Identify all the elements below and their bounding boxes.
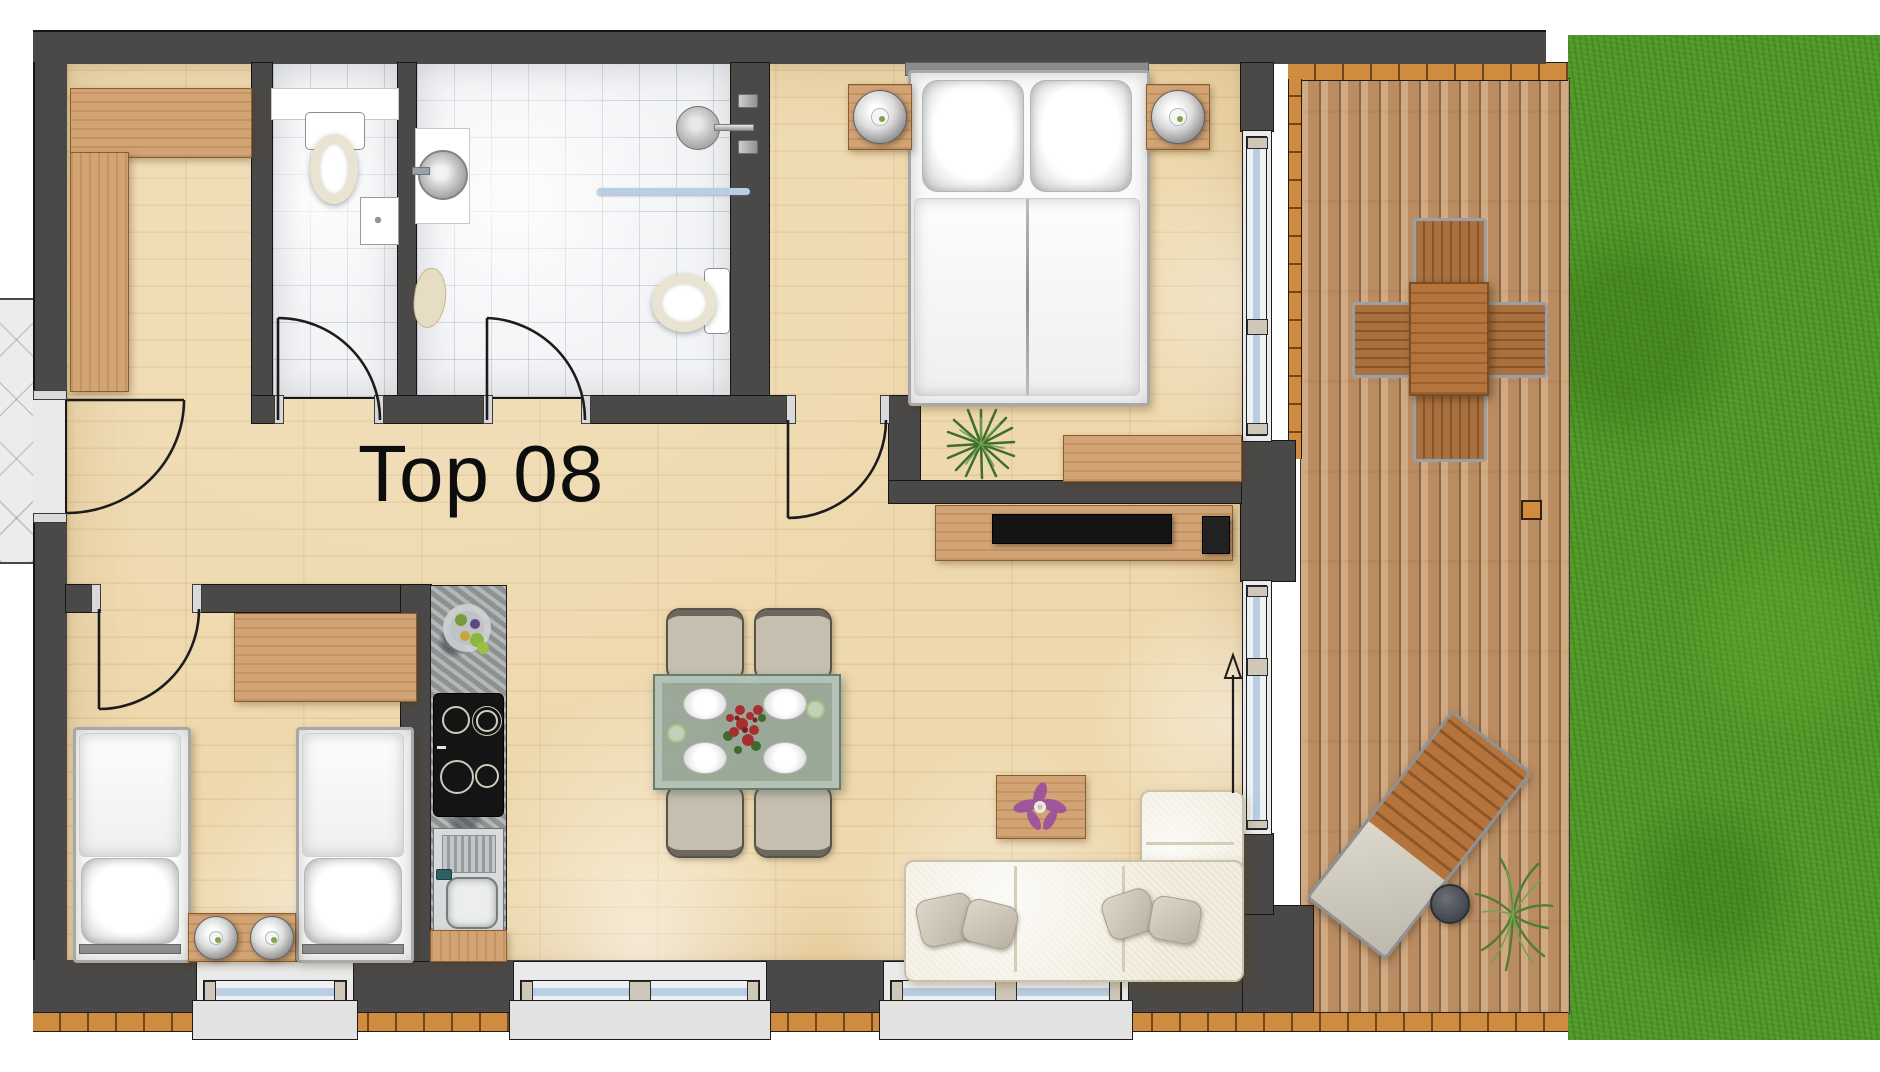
sliding-door-terrace: [1246, 585, 1267, 830]
bedside-lamp: [194, 916, 238, 960]
bed-footboard: [302, 944, 404, 954]
wc-door-jamb: [374, 395, 384, 424]
wall-outer-top: [33, 30, 1546, 64]
wall-wc-right: [397, 62, 417, 397]
sliding-door-glass: [1253, 589, 1260, 826]
single-bed-duvet: [79, 733, 181, 857]
entry-door-jamb: [33, 513, 67, 523]
sliding-door-handle: [1247, 658, 1268, 676]
cooktop: [433, 693, 504, 817]
burner: [475, 764, 499, 788]
terrace-chair-bottom: [1413, 392, 1487, 462]
hall-wardrobe-top: [70, 88, 252, 158]
hob-control: [437, 746, 446, 749]
burner: [476, 710, 498, 732]
single-bed-duvet: [302, 733, 404, 857]
wall-right-above-window: [1240, 62, 1274, 132]
bathroom-door-jamb: [483, 395, 493, 424]
sofa-seam: [1146, 842, 1234, 845]
window-outer-sill: [192, 1000, 358, 1040]
building-corridor-tiles: [0, 298, 33, 564]
dining-chair: [666, 608, 744, 682]
bathroom-toilet-bowl: [652, 274, 716, 332]
wall-right-between-openings: [1240, 440, 1296, 582]
entry-door-jamb: [33, 390, 67, 400]
terrace-chair-top: [1413, 218, 1487, 288]
bathroom-basin: [418, 150, 468, 200]
bedroom-desk: [1063, 435, 1242, 482]
window-mullion: [1247, 319, 1268, 335]
wall-bathroom-right: [730, 62, 770, 397]
terrace-trim-left: [1288, 79, 1302, 459]
wall-outer-left-lower: [33, 513, 67, 1012]
wc-toilet-bowl: [310, 134, 358, 204]
dining-chair: [666, 784, 744, 858]
bathroom-door-jamb: [581, 395, 591, 424]
bedroom-door-jamb: [880, 395, 890, 424]
terrace-chair-right: [1485, 302, 1548, 378]
window-glass: [1253, 140, 1260, 432]
floor-plan-canvas: Top 08: [0, 0, 1880, 1072]
sofa-pillow: [1147, 894, 1204, 946]
window-glass: [207, 988, 343, 996]
wall-outer-left-upper: [33, 62, 67, 398]
wall-sanitary-bottom-b: [382, 395, 485, 424]
wall-sanitary-bottom-c: [589, 395, 788, 424]
window-cap: [1247, 423, 1268, 435]
hall-wardrobe-side: [70, 152, 129, 392]
unit-label: Top 08: [358, 428, 604, 520]
potted-plant: [944, 406, 1018, 482]
wall-bedroom2-top-b: [200, 584, 432, 613]
window-outer-sill: [509, 1000, 771, 1040]
terrace-side-table: [1430, 884, 1470, 924]
burner: [442, 706, 470, 734]
terrace-table: [1409, 282, 1489, 396]
kitchen-sink-unit: [433, 828, 504, 934]
entry-door-threshold: [33, 398, 65, 515]
shower-glass-divider: [597, 188, 750, 195]
bedside-lamp: [1151, 90, 1205, 144]
wall-sanitary-bottom-a: [251, 395, 276, 424]
bed-pillow: [922, 80, 1024, 192]
kitchen-base-cabinet: [430, 930, 507, 962]
wall-bedroom-bottom: [888, 480, 1242, 504]
wall-bedroom2-top-a: [65, 584, 93, 613]
sliding-door-cap: [1247, 586, 1268, 597]
sink-bowl: [446, 877, 498, 929]
sink-faucet-icon: [436, 869, 452, 880]
window-cap: [1247, 137, 1268, 149]
bathroom-basin-faucet-icon: [412, 167, 430, 175]
table-glass-cup: [806, 700, 825, 719]
single-bed-pillow: [81, 858, 179, 944]
sliding-door-cap: [1247, 820, 1268, 829]
window-outer-sill: [879, 1000, 1133, 1040]
dining-chair: [754, 608, 832, 682]
kitchen-decor-plate: [437, 596, 499, 666]
bed-duvet: [914, 198, 1140, 396]
table-glass-cup: [667, 724, 686, 743]
terrace-marker: [1521, 500, 1542, 520]
shower-tap-icon: [738, 140, 758, 154]
table-flower-bouquet: [712, 696, 776, 762]
wall-right-below-slider: [1240, 833, 1274, 915]
bedroom2-dresser: [234, 613, 417, 702]
bed-footboard: [79, 944, 181, 954]
bedroom2-door-jamb: [91, 584, 101, 613]
bedroom-door-jamb: [786, 395, 796, 424]
bedside-lamp: [853, 90, 907, 144]
coffee-table-flowers: [1006, 778, 1074, 834]
media-box: [1202, 516, 1230, 554]
bed-pillow: [1030, 80, 1132, 192]
shower-tap-icon: [738, 94, 758, 108]
shower-arm-icon: [714, 124, 754, 131]
wall-wc-left: [251, 62, 273, 397]
window-bedroom: [1246, 136, 1267, 436]
dining-chair: [754, 784, 832, 858]
terrace-plant: [1470, 850, 1556, 976]
bedroom2-door-jamb: [192, 584, 202, 613]
lawn-grass: [1568, 35, 1880, 1040]
wc-basin-faucet-icon: [372, 214, 384, 226]
terrace-trim-top: [1288, 62, 1568, 81]
wall-outer-right-step: [1242, 905, 1314, 1014]
sink-drainboard: [442, 835, 496, 873]
single-bed-pillow: [304, 858, 402, 944]
wc-door-jamb: [274, 395, 284, 424]
terrace-chair-left: [1352, 302, 1415, 378]
burner: [440, 760, 474, 794]
duvet-split-line: [1026, 199, 1029, 395]
bedside-lamp: [250, 916, 294, 960]
tv-screen: [992, 514, 1172, 544]
